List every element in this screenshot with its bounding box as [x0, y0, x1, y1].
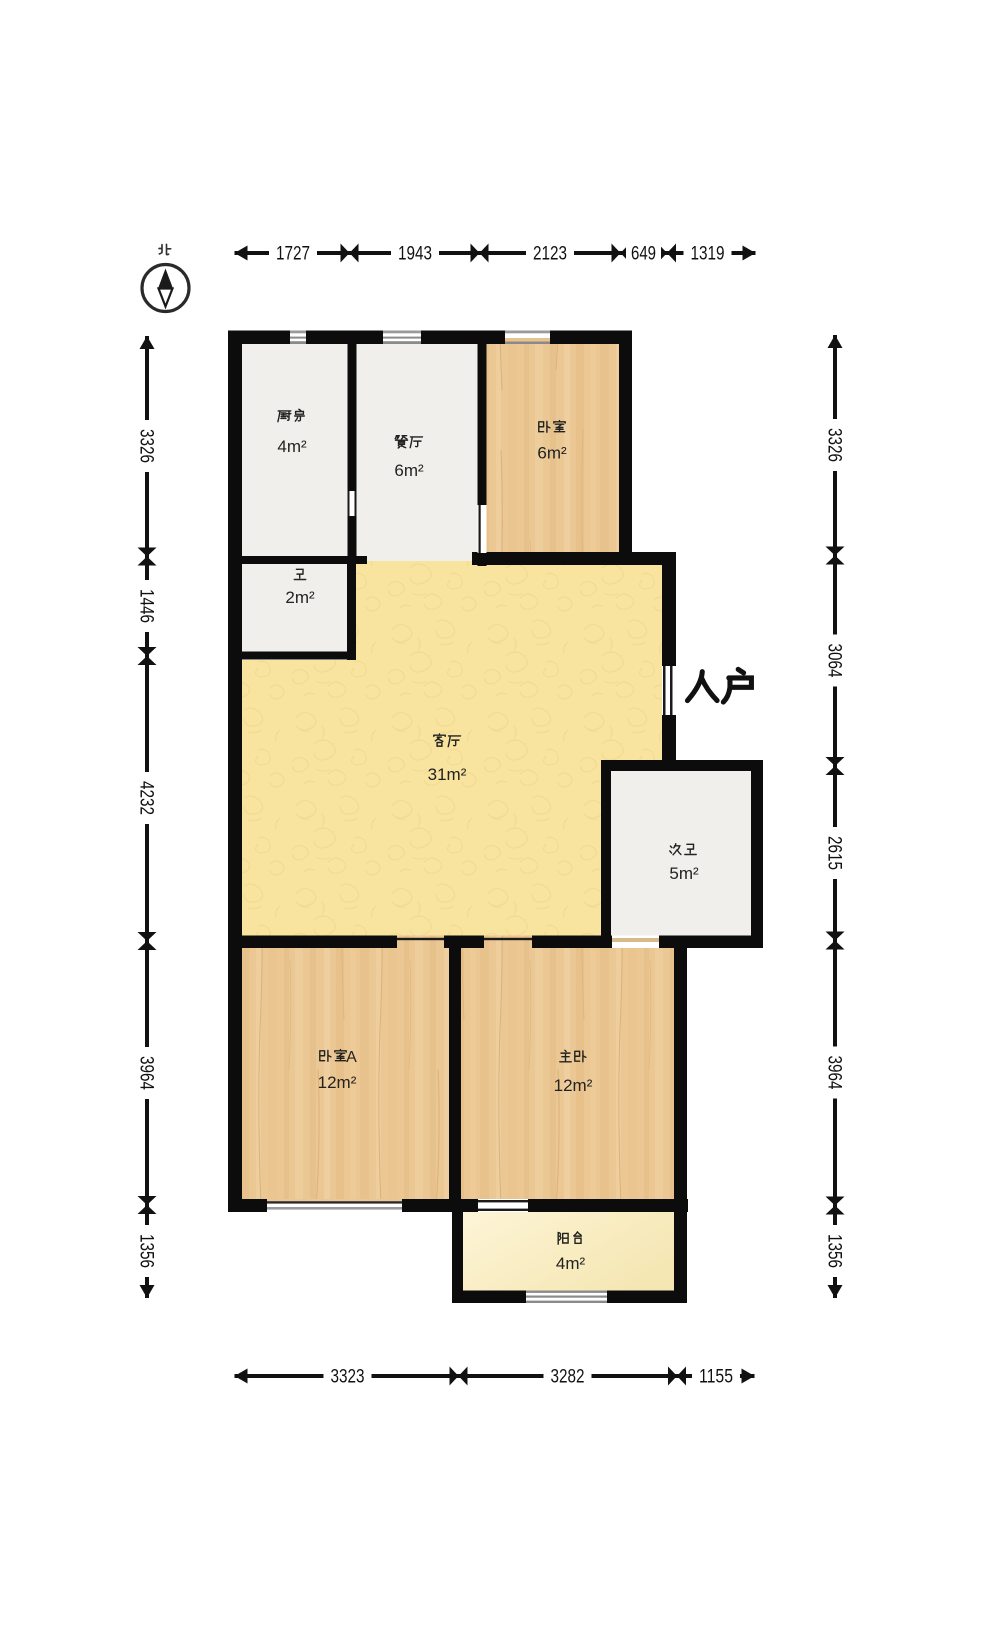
- svg-text:A: A: [346, 1049, 357, 1066]
- svg-text:3064: 3064: [824, 644, 845, 678]
- svg-text:5m²: 5m²: [669, 864, 699, 883]
- svg-text:3282: 3282: [551, 1367, 585, 1388]
- svg-text:31m²: 31m²: [428, 765, 467, 784]
- svg-text:1155: 1155: [699, 1367, 733, 1388]
- svg-text:3326: 3326: [824, 428, 845, 462]
- svg-text:1446: 1446: [136, 589, 157, 623]
- svg-text:1943: 1943: [398, 244, 432, 265]
- svg-text:1356: 1356: [824, 1234, 845, 1268]
- svg-text:3964: 3964: [824, 1056, 845, 1090]
- svg-text:2615: 2615: [824, 836, 845, 870]
- svg-text:2123: 2123: [533, 244, 567, 265]
- svg-text:12m²: 12m²: [554, 1076, 593, 1095]
- svg-text:6m²: 6m²: [394, 461, 424, 480]
- svg-text:3326: 3326: [136, 429, 157, 463]
- svg-text:2m²: 2m²: [285, 588, 315, 607]
- svg-text:4m²: 4m²: [277, 437, 307, 456]
- svg-text:649: 649: [631, 244, 656, 265]
- svg-text:1356: 1356: [136, 1234, 157, 1268]
- svg-text:3323: 3323: [331, 1367, 365, 1388]
- svg-text:12m²: 12m²: [318, 1073, 357, 1092]
- svg-text:1727: 1727: [276, 244, 310, 265]
- svg-text:4m²: 4m²: [556, 1254, 586, 1273]
- svg-text:6m²: 6m²: [537, 444, 567, 463]
- svg-text:1319: 1319: [691, 244, 725, 265]
- svg-text:4232: 4232: [136, 781, 157, 815]
- svg-text:3964: 3964: [136, 1056, 157, 1090]
